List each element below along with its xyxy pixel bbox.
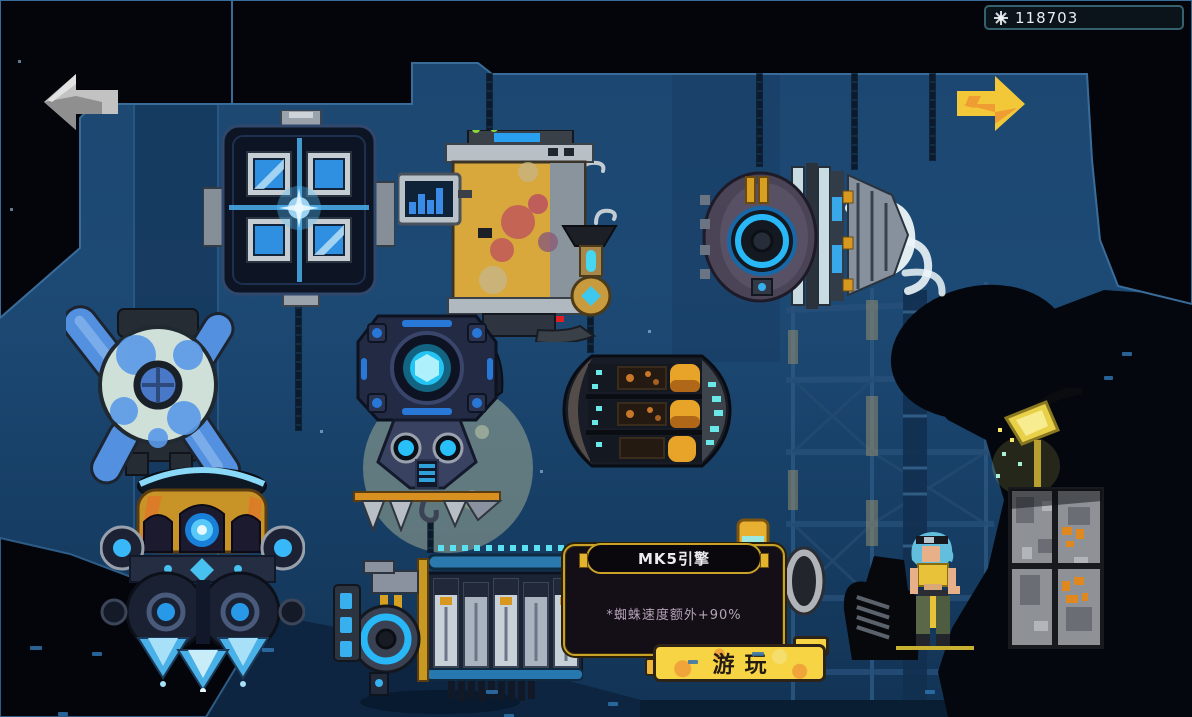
machine-mk5-piston-engine[interactable] [328, 531, 583, 703]
prop-wall-spotlight [992, 388, 1082, 498]
gear-burst-icon [994, 11, 1008, 25]
tooltip-title: MK5引擎 [638, 548, 710, 569]
floor-light-dash [1104, 376, 1113, 380]
water-speck [320, 430, 323, 433]
tooltip-title-pill: MK5引擎 [586, 543, 762, 574]
hanging-chain [296, 300, 301, 430]
floor-light-dash [688, 660, 698, 664]
oval-hatch-graphic [782, 546, 826, 616]
cargo-crate-graphic [1008, 487, 1104, 649]
floor-light-dash [1122, 352, 1132, 356]
currency-counter: 118703 [984, 5, 1184, 30]
prop-oval-hatch [782, 546, 826, 616]
wall-spotlight-graphic [992, 388, 1082, 498]
floor-light-dash [92, 652, 102, 656]
machine-quad-window-reactor[interactable] [203, 110, 395, 308]
prop-cargo-crate [1008, 487, 1104, 649]
floor-light-dash [608, 702, 618, 706]
water-speck [648, 330, 651, 333]
machine-core-drill-unit[interactable] [346, 302, 511, 532]
arrow-left-icon [42, 72, 120, 132]
water-speck [18, 60, 21, 63]
floor-light-dash [486, 690, 498, 694]
machine-triple-thruster-pod[interactable] [100, 460, 305, 692]
tooltip-body: *蜘蛛速度额外+90% [565, 604, 783, 623]
triple-thruster-pod-graphic [100, 460, 305, 692]
machine-torpedo-pod[interactable] [562, 348, 732, 474]
hanging-chain [930, 74, 935, 160]
mk5-piston-engine-graphic [328, 531, 583, 703]
machine-turbine-engine[interactable] [700, 153, 950, 318]
floor-light-dash [752, 652, 764, 656]
mechanic-character [896, 526, 974, 654]
floor-light-dash [925, 690, 935, 694]
water-speck [10, 208, 13, 211]
play-button[interactable]: 游玩 [653, 644, 826, 682]
torpedo-pod-graphic [562, 348, 732, 474]
engine-tooltip: MK5引擎 *蜘蛛速度额外+90% [563, 544, 785, 656]
floor-light-dash [58, 712, 68, 716]
previous-arrow-button[interactable] [42, 72, 120, 132]
water-speck [540, 470, 543, 473]
quad-window-reactor-graphic [203, 110, 395, 308]
core-drill-unit-graphic [346, 302, 511, 532]
floor-light-dash [30, 646, 42, 650]
tooltip-clasp-right [760, 553, 769, 568]
mechanic-character-graphic [896, 526, 974, 654]
scene: 118703 MK5引擎 *蜘蛛速度额外+90% 游玩 [0, 0, 1192, 717]
tooltip-clasp-left [579, 553, 588, 568]
currency-value: 118703 [1015, 9, 1078, 27]
hanging-chain [487, 74, 492, 136]
turbine-engine-graphic [700, 153, 950, 318]
next-arrow-button[interactable] [955, 76, 1027, 132]
arrow-right-icon [955, 76, 1027, 132]
floor-light-dash [262, 648, 274, 652]
